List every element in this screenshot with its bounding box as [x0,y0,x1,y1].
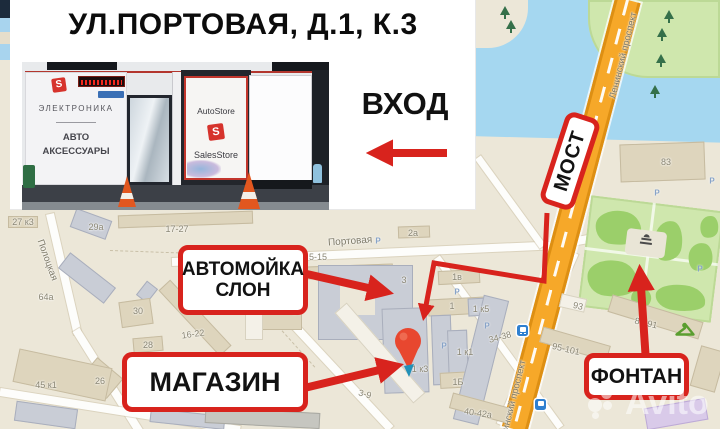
watermark-logo-circle [601,388,612,399]
autostore-banner: AutoStore S SalesStore [184,76,248,180]
parking-icon: Р [454,288,459,297]
building-label: 5-15 [309,252,327,262]
left-edge-land [0,32,10,44]
street-label-portovaya: Портовая [328,234,373,248]
tree-icon [506,20,516,33]
sidewalk [22,202,329,210]
building-label: 1 к3 [412,364,428,374]
building-label: 2а [408,228,418,238]
building-label: 27 к3 [12,217,33,227]
callout-carwash-line1: АВТОМОЙКА [182,259,304,280]
watermark-text: Avito [625,384,709,423]
building-label: 16-22 [181,327,205,340]
store-logo: S [51,77,67,93]
tree-icon [500,6,510,19]
fountain-icon [640,234,653,247]
watermark-logo-circle [588,398,602,412]
building-label: 17-27 [165,224,188,234]
watermark-logo-circle [603,401,612,410]
transit-stop-icon [517,325,528,336]
electronics-wall [25,72,127,185]
auto-sign-line2: АКСЕССУАРЫ [26,146,126,157]
parking-icon: Р [441,342,446,351]
banner-logo: S [207,123,225,141]
water-bottle [313,164,322,183]
auto-sign-line1: АВТО [26,132,126,143]
building-label: 1Б [453,377,464,387]
parking-icon: Р [709,177,714,186]
info-panel: УЛ.ПОРТОВАЯ, Д.1, К.3 S ЭЛЕКТРОНИКА АВТО… [10,0,476,210]
building-label: 30 [133,306,143,316]
entrance-label: ВХОД [345,86,465,122]
address-title: УЛ.ПОРТОВАЯ, Д.1, К.3 [10,8,476,42]
left-edge-water [0,18,10,32]
building-label: 83 [661,157,671,167]
building-label: 3 [401,275,406,285]
transit-stop-icon [535,399,546,410]
park-fountain-square [578,195,720,322]
building-label: 29а [88,222,103,232]
building-label: 1в [452,272,462,282]
callout-carwash-line2: СЛОН [215,280,270,301]
tree-icon [650,85,660,98]
parking-icon: Р [484,322,489,331]
callout-shop-text: МАГАЗИН [150,367,281,397]
graffiti [187,160,221,178]
photo-top-dark-left [47,62,117,70]
left-edge-water2 [0,44,10,60]
white-door [249,75,312,185]
blue-address-sign [98,91,124,98]
sign-divider [56,122,96,123]
doormat [250,180,312,189]
tree-icon [657,28,667,41]
entrance-door [127,95,172,185]
left-edge-dark [0,0,10,18]
building-label: 26 [95,376,105,386]
tree-icon [656,54,666,67]
building-label: 64а [38,292,53,302]
electronics-sign-text: ЭЛЕКТРОНИКА [26,104,126,113]
banner-autostore-text: AutoStore [186,106,246,116]
building-label: 28 [143,340,153,350]
parking-icon: Р [375,237,380,246]
listing-map-image: 27 к3 29а 17-27 64а 30 28 26 45 к1 16-22… [0,0,720,429]
avito-watermark: Avito [588,384,709,423]
led-ticker [78,76,125,87]
pillar [172,72,181,185]
building-label: 1 к1 [457,347,473,357]
parking-icon: Р [697,265,702,274]
tree-icon [664,10,674,23]
banner-salesstore-text: SalesStore [186,150,246,160]
building-label: 1 к5 [473,304,489,314]
callout-carwash: АВТОМОЙКА СЛОН [178,245,308,315]
storefront-photo: S ЭЛЕКТРОНИКА АВТО АКСЕССУАРЫ AutoStore … [22,62,329,210]
callout-shop: МАГАЗИН [122,352,308,412]
parking-icon: Р [654,189,659,198]
building-label: 45 к1 [35,380,56,390]
building-label: 1 [449,301,454,311]
watermark-logo-circle [592,412,599,419]
park-shrub [699,215,720,239]
trash-bin [23,165,35,188]
